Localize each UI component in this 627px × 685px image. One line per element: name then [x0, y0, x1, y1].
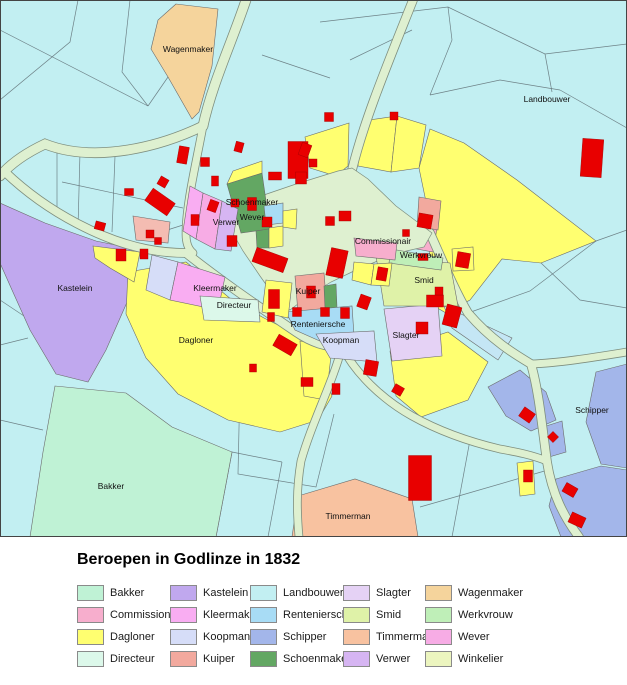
page: WagenmakerLandbouwerSchoenmakerVerwerWev…	[0, 0, 627, 685]
legend-swatch	[425, 607, 452, 623]
building	[427, 295, 444, 307]
building	[250, 364, 257, 372]
legend-swatch	[425, 651, 452, 667]
legend-swatch	[170, 585, 197, 601]
legend-label: Schoenmaker	[283, 653, 351, 665]
building	[191, 215, 199, 226]
map-label: Kuiper	[296, 286, 321, 296]
map-label: Koopman	[323, 335, 360, 345]
building	[227, 236, 237, 247]
map-label: Smid	[414, 275, 434, 285]
map-label: Verwer	[213, 217, 240, 227]
building	[140, 249, 148, 259]
parcel-dagloner	[283, 209, 297, 229]
legend-label: Dagloner	[110, 631, 155, 643]
map-label: Kastelein	[58, 283, 93, 293]
building	[339, 211, 351, 221]
building	[269, 290, 280, 309]
legend-swatch	[250, 607, 277, 623]
map: WagenmakerLandbouwerSchoenmakerVerwerWev…	[0, 0, 627, 537]
map-svg: WagenmakerLandbouwerSchoenmakerVerwerWev…	[0, 0, 627, 537]
legend-swatch	[250, 651, 277, 667]
legend-swatch	[250, 629, 277, 645]
legend-label: Directeur	[110, 653, 155, 665]
legend-swatch	[343, 607, 370, 623]
building	[268, 313, 275, 322]
building	[269, 172, 282, 180]
parcel-dagloner	[269, 226, 283, 248]
legend-title: Beroepen in Godlinze in 1832	[77, 551, 300, 569]
building	[376, 267, 388, 282]
legend-swatch	[77, 585, 104, 601]
legend-swatch	[343, 651, 370, 667]
building	[326, 217, 335, 226]
building	[125, 189, 134, 196]
legend-swatch	[77, 651, 104, 667]
parcel-schoenmaker	[256, 229, 269, 248]
building	[321, 308, 330, 317]
building	[309, 159, 317, 167]
legend-label: Schipper	[283, 631, 326, 643]
building	[455, 251, 470, 268]
building	[293, 308, 302, 317]
legend-label: Landbouwer	[283, 587, 344, 599]
map-label: Timmerman	[325, 511, 370, 521]
map-label: Commissionair	[355, 236, 411, 246]
legend-label: Werkvrouw	[458, 609, 513, 621]
parcel-schoenmaker	[324, 284, 337, 308]
legend-swatch	[170, 651, 197, 667]
legend-label: Winkelier	[458, 653, 503, 665]
building	[409, 456, 432, 501]
legend-swatch	[250, 585, 277, 601]
building	[417, 213, 433, 229]
map-label: Schoenmaker	[226, 197, 279, 207]
building	[332, 384, 340, 395]
building	[301, 378, 313, 387]
building	[116, 249, 126, 261]
legend-label: Slagter	[376, 587, 411, 599]
legend-label: Kuiper	[203, 653, 235, 665]
building	[435, 287, 443, 295]
building	[325, 113, 334, 122]
building	[201, 158, 210, 167]
map-label: Slagter	[393, 330, 420, 340]
legend-label: Kastelein	[203, 587, 248, 599]
map-label: Renteniersche	[291, 319, 346, 329]
legend-swatch	[425, 585, 452, 601]
building	[524, 470, 533, 482]
map-label: Directeur	[217, 300, 252, 310]
legend-label: Koopman	[203, 631, 250, 643]
building	[296, 172, 307, 184]
map-label: Bakker	[98, 481, 125, 491]
legend-swatch	[425, 629, 452, 645]
legend: Beroepen in Godlinze in 1832 BakkerCommi…	[0, 537, 627, 685]
map-label: Wagenmaker	[163, 44, 213, 54]
building	[155, 238, 162, 245]
legend-label: Verwer	[376, 653, 410, 665]
legend-swatch	[77, 629, 104, 645]
legend-label: Smid	[376, 609, 401, 621]
legend-label: Wagenmaker	[458, 587, 523, 599]
map-label: Werkvrouw	[400, 250, 443, 260]
legend-swatch	[77, 607, 104, 623]
legend-swatch	[170, 607, 197, 623]
legend-label: Bakker	[110, 587, 144, 599]
map-label: Dagloner	[179, 335, 214, 345]
building	[363, 359, 378, 376]
building	[146, 230, 154, 238]
map-label: Schipper	[575, 405, 609, 415]
legend-swatch	[343, 629, 370, 645]
building	[341, 308, 350, 319]
map-label: Landbouwer	[524, 94, 571, 104]
legend-label: Wever	[458, 631, 490, 643]
legend-swatch	[343, 585, 370, 601]
map-label: Wever	[240, 212, 265, 222]
building	[390, 112, 398, 120]
building	[212, 176, 219, 186]
legend-swatch	[170, 629, 197, 645]
map-label: Kleermaker	[193, 283, 237, 293]
building	[580, 138, 604, 177]
